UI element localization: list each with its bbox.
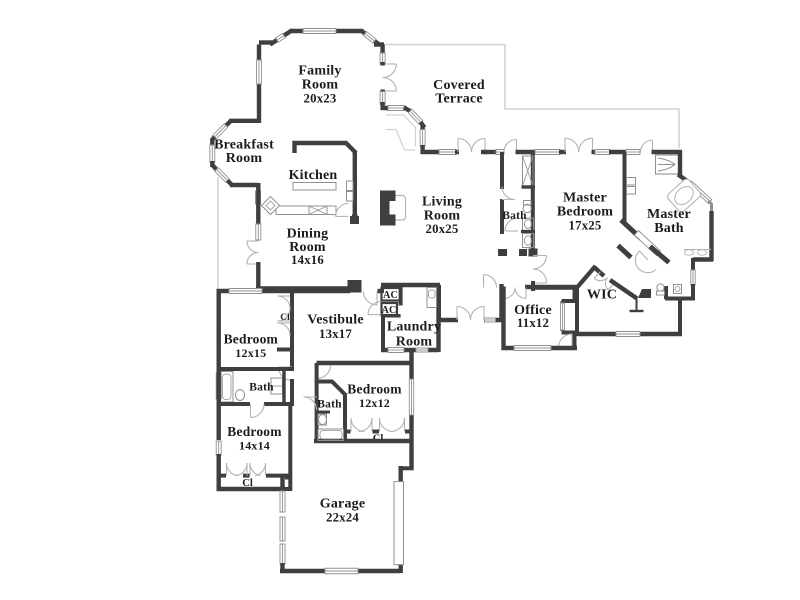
svg-text:Bath: Bath — [249, 382, 274, 394]
svg-text:Bath: Bath — [317, 399, 342, 411]
svg-text:Vestibule: Vestibule — [307, 313, 364, 328]
svg-text:Cl: Cl — [280, 313, 290, 323]
svg-text:Garage: Garage — [320, 497, 366, 512]
svg-text:Room: Room — [302, 78, 339, 93]
svg-text:Laundry: Laundry — [387, 320, 441, 335]
svg-text:12x15: 12x15 — [235, 346, 266, 360]
svg-text:14x14: 14x14 — [239, 439, 270, 453]
svg-text:Master: Master — [647, 207, 691, 222]
svg-text:WIC: WIC — [587, 288, 617, 303]
svg-text:AC: AC — [383, 290, 398, 301]
svg-text:Kitchen: Kitchen — [289, 168, 338, 183]
svg-text:12x12: 12x12 — [359, 396, 390, 410]
svg-text:Bath: Bath — [502, 210, 527, 222]
svg-text:Bedroom: Bedroom — [224, 332, 279, 347]
svg-text:Master: Master — [563, 191, 607, 206]
svg-text:Terrace: Terrace — [435, 92, 483, 107]
svg-text:20x25: 20x25 — [426, 222, 459, 236]
svg-text:22x24: 22x24 — [326, 511, 359, 525]
svg-text:Living: Living — [422, 195, 462, 210]
svg-text:14x16: 14x16 — [291, 253, 324, 267]
svg-text:Room: Room — [226, 151, 263, 166]
svg-text:Bedroom: Bedroom — [557, 205, 613, 220]
svg-text:Bath: Bath — [654, 221, 684, 236]
svg-text:11x12: 11x12 — [517, 316, 549, 330]
svg-text:Bedroom: Bedroom — [227, 424, 282, 439]
svg-text:13x17: 13x17 — [319, 327, 352, 341]
svg-text:17x25: 17x25 — [569, 219, 602, 233]
svg-text:Room: Room — [396, 335, 433, 350]
svg-text:Family: Family — [298, 64, 341, 79]
svg-text:20x23: 20x23 — [304, 92, 337, 106]
svg-text:Bedroom: Bedroom — [347, 382, 402, 397]
